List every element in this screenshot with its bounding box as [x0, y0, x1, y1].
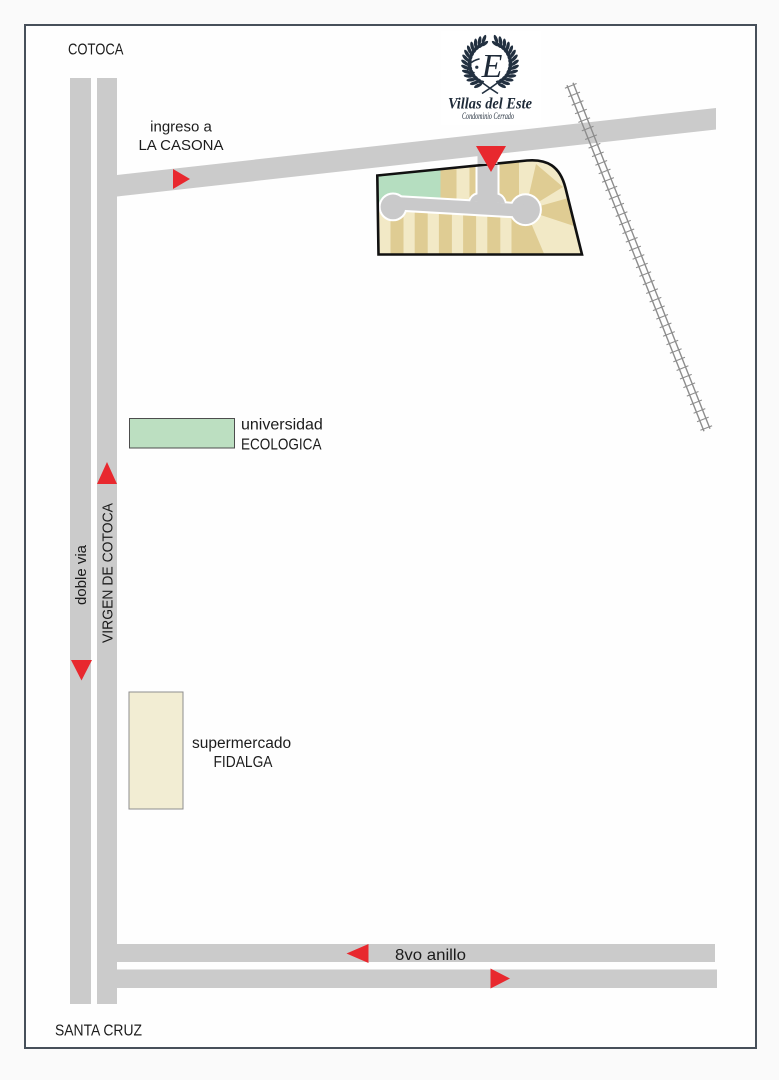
svg-text:LA CASONA: LA CASONA	[138, 137, 223, 154]
svg-text:Villas del Este: Villas del Este	[448, 96, 532, 113]
svg-text:SANTA CRUZ: SANTA CRUZ	[55, 1023, 142, 1040]
svg-text:E: E	[481, 48, 503, 85]
svg-text:ECOLOGICA: ECOLOGICA	[241, 437, 322, 454]
svg-text:doble via: doble via	[73, 544, 90, 605]
svg-text:supermercado: supermercado	[192, 735, 291, 752]
svg-text:8vo anillo: 8vo anillo	[395, 947, 466, 964]
svg-text:universidad: universidad	[241, 417, 323, 434]
svg-text:FIDALGA: FIDALGA	[214, 754, 274, 771]
svg-text:ingreso a: ingreso a	[150, 119, 212, 136]
svg-text:COTOCA: COTOCA	[68, 42, 124, 59]
svg-text:VIRGEN DE COTOCA: VIRGEN DE COTOCA	[99, 503, 116, 643]
svg-text:Condominio Cerrado: Condominio Cerrado	[462, 111, 514, 121]
